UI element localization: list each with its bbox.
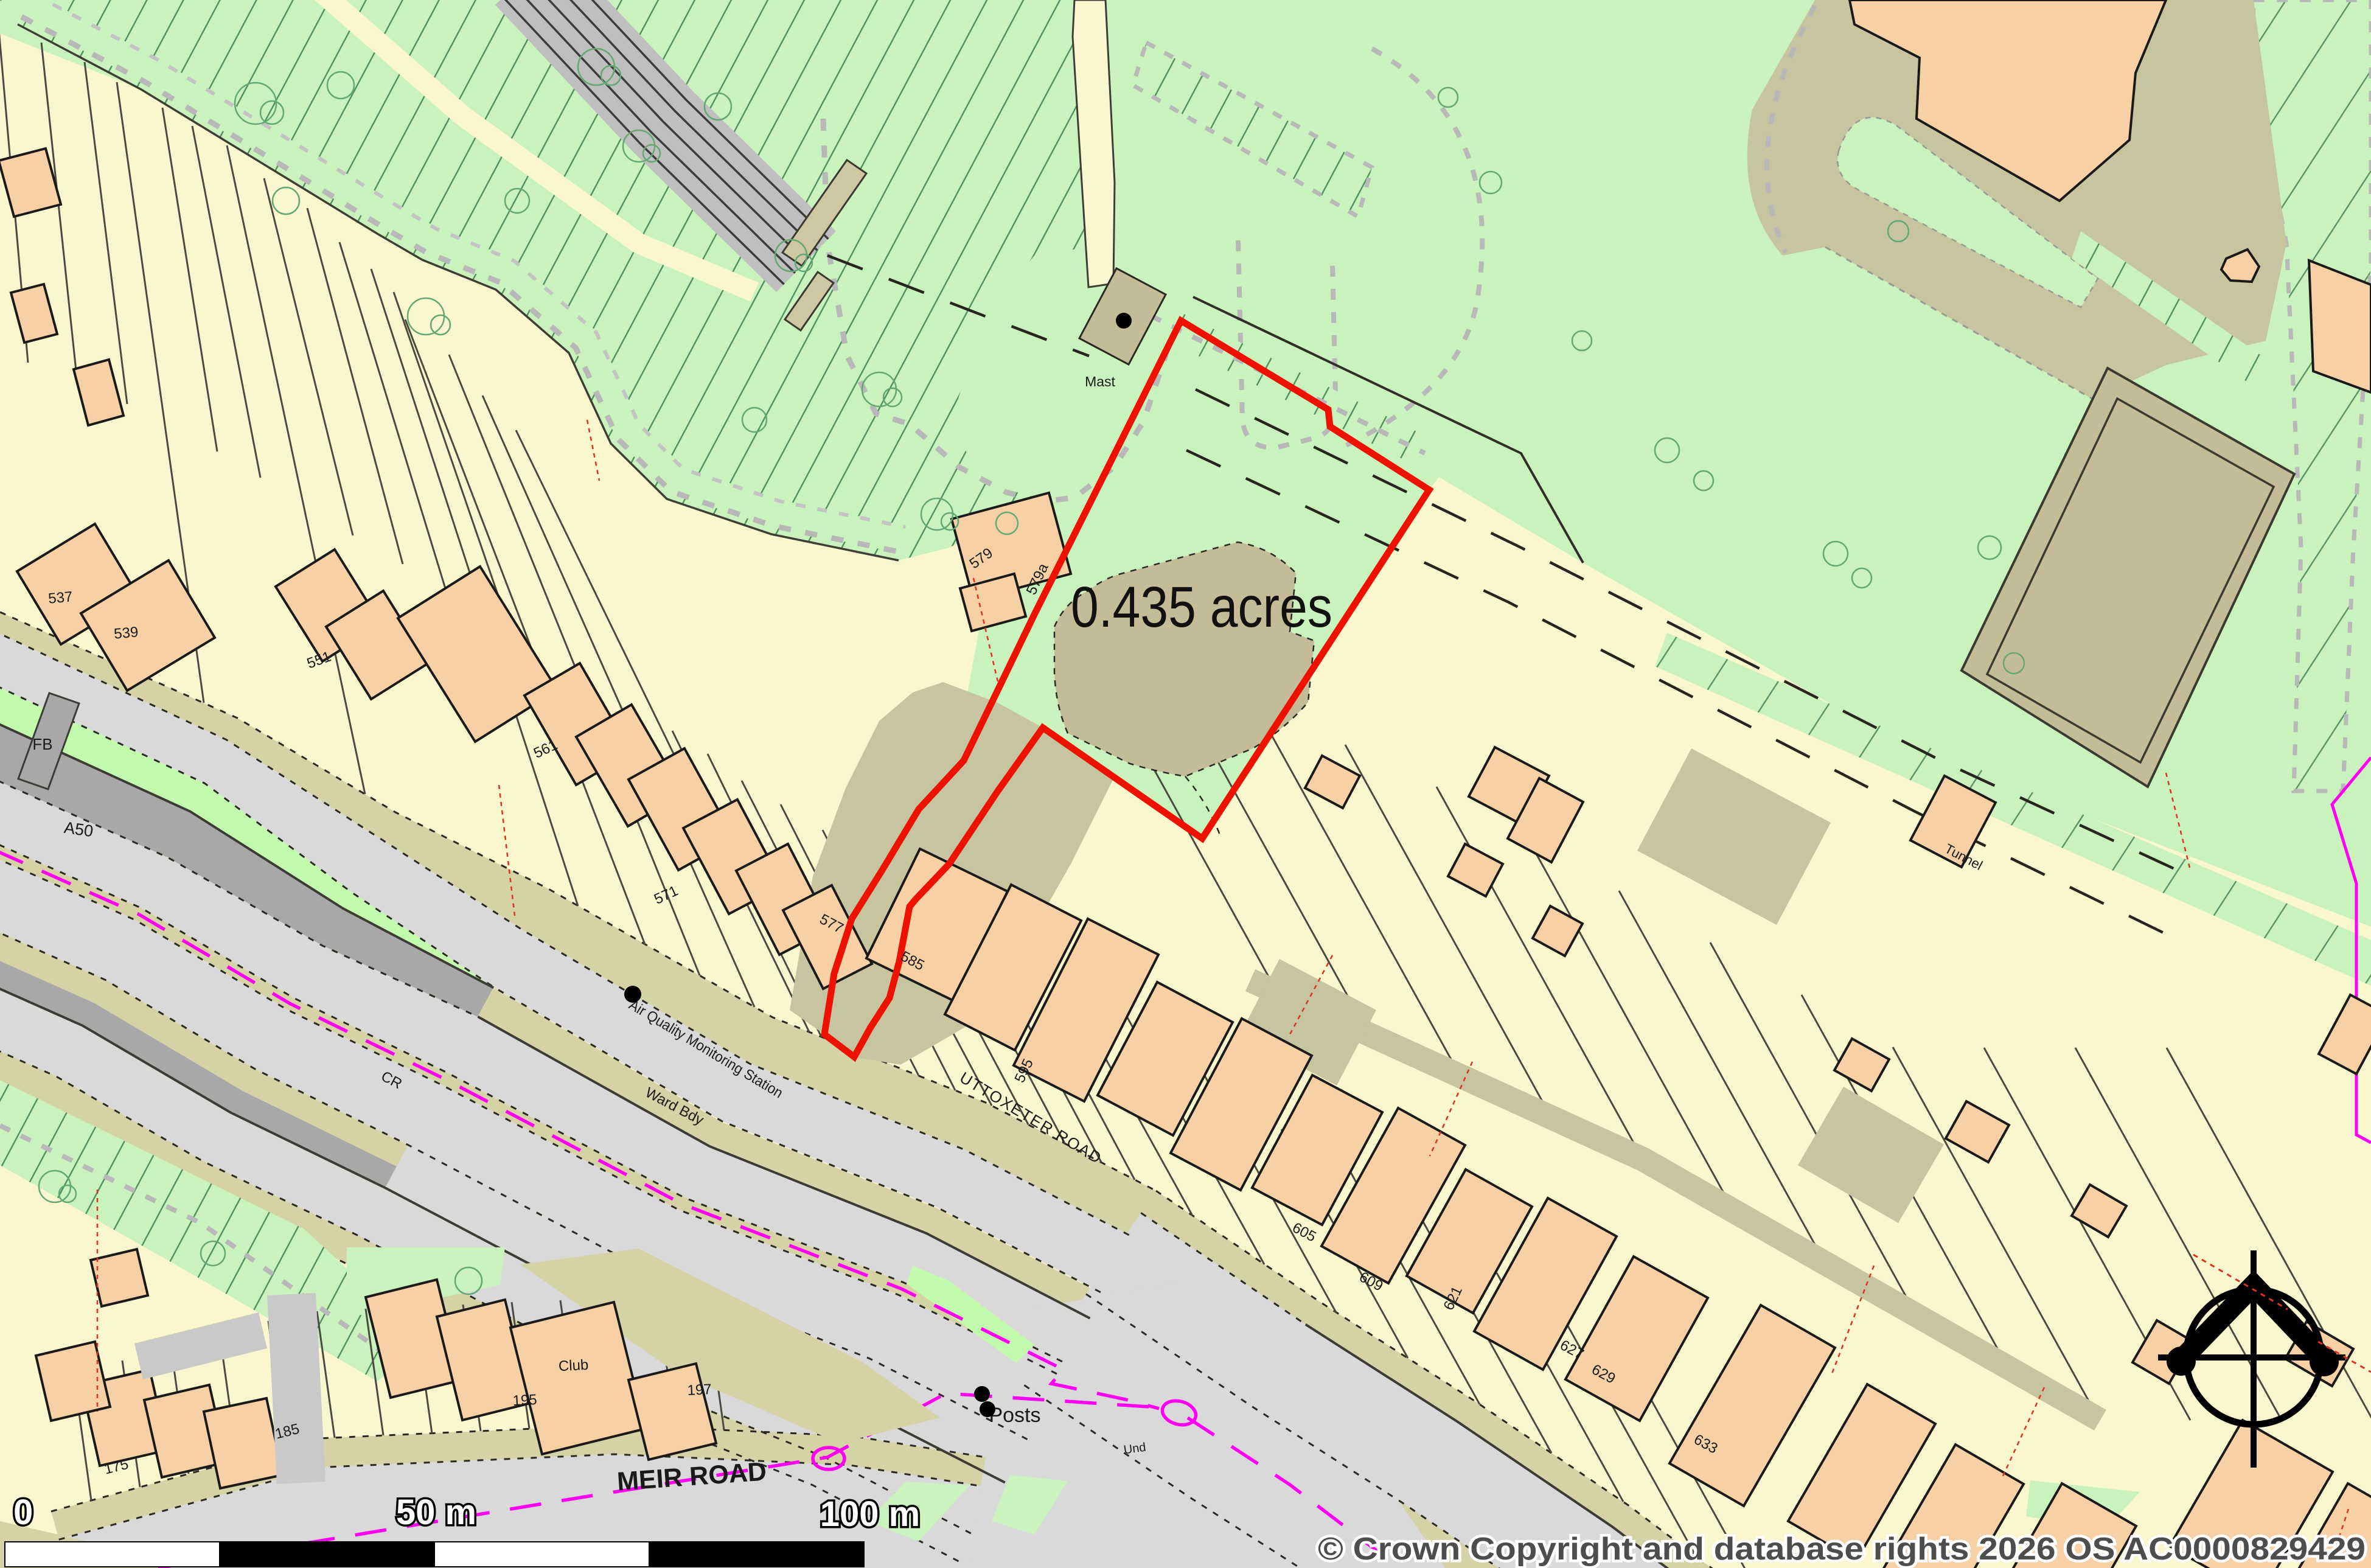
svg-text:0.435 acres: 0.435 acres — [1071, 575, 1332, 639]
svg-text:100 m: 100 m — [820, 1494, 920, 1534]
svg-text:Club: Club — [558, 1357, 589, 1375]
svg-text:539: 539 — [113, 624, 139, 642]
svg-text:Posts: Posts — [989, 1404, 1040, 1427]
svg-text:537: 537 — [47, 588, 73, 607]
svg-text:197: 197 — [687, 1381, 712, 1399]
svg-text:0: 0 — [13, 1493, 33, 1532]
svg-text:FB: FB — [32, 735, 52, 753]
svg-text:195: 195 — [512, 1392, 537, 1409]
svg-text:50 m: 50 m — [396, 1493, 476, 1532]
svg-text:Mast: Mast — [1085, 374, 1115, 389]
svg-text:© Crown Copyright and database: © Crown Copyright and database rights 20… — [1318, 1531, 2366, 1567]
